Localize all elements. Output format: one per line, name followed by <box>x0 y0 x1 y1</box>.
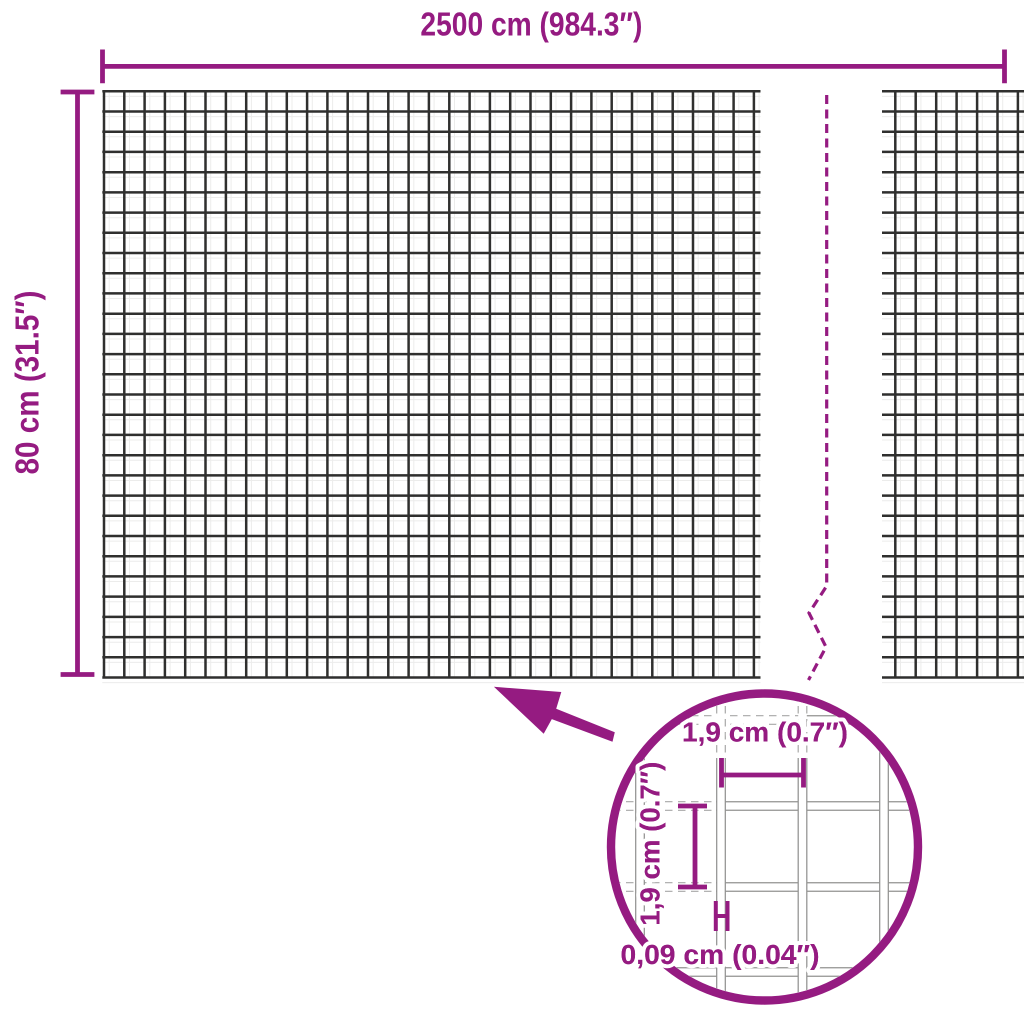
svg-text:1,9 cm (0.7″): 1,9 cm (0.7″) <box>682 717 848 748</box>
svg-text:80 cm (31.5″): 80 cm (31.5″) <box>9 291 46 475</box>
svg-text:2500 cm (984.3″): 2500 cm (984.3″) <box>420 6 642 43</box>
svg-text:1,9 cm (0.7″): 1,9 cm (0.7″) <box>635 762 666 926</box>
svg-text:0,09 cm (0.04″): 0,09 cm (0.04″) <box>621 939 820 970</box>
